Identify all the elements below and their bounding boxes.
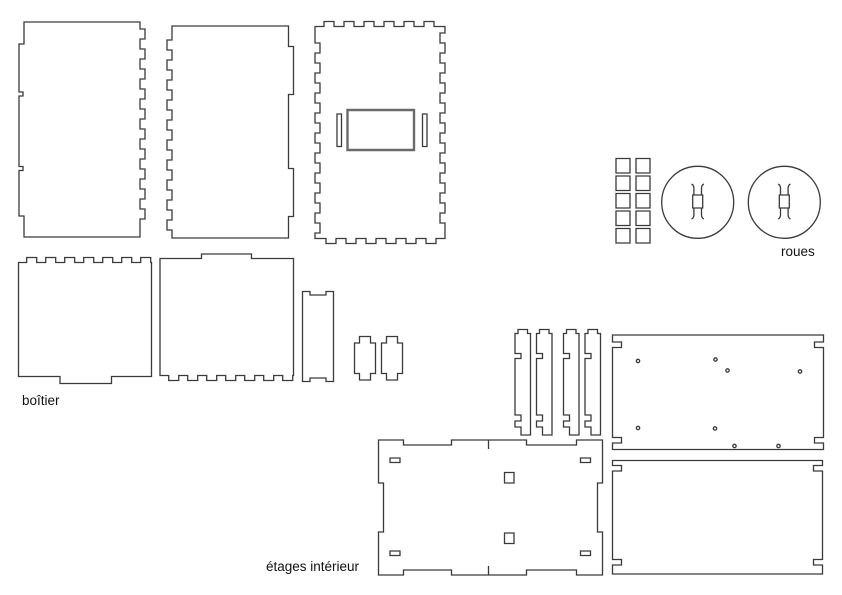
part-back-panel <box>315 22 445 244</box>
group-roues: roues <box>616 159 820 260</box>
part-clip-a <box>355 337 376 381</box>
part-divider-1 <box>515 330 531 436</box>
part-floor-plate-slots <box>390 440 591 575</box>
label-etages-interieur: étages intérieur <box>266 559 360 574</box>
part-box-panel-b <box>160 254 294 381</box>
part-side-panel-b <box>167 26 294 238</box>
label-boitier: boîtier <box>22 393 60 408</box>
lasercut-parts-drawing: boîtier roues étages intérieur <box>0 0 842 595</box>
part-clip-b <box>382 337 403 381</box>
group-etages-interieur: étages intérieur <box>266 330 824 576</box>
part-divider-4 <box>585 330 601 436</box>
lasercut-parts-sheet: boîtier roues étages intérieur <box>0 0 842 595</box>
part-shelf-with-holes <box>613 335 824 450</box>
part-shelf-plain <box>613 461 823 575</box>
part-box-panel-c <box>303 292 334 382</box>
part-wheel-b <box>748 166 820 238</box>
label-roues: roues <box>781 244 815 259</box>
part-divider-3 <box>564 330 580 436</box>
part-spacer-squares <box>616 159 650 244</box>
part-back-panel-window-cutout <box>348 110 415 150</box>
part-shelf-holes <box>636 358 801 448</box>
part-divider-2 <box>537 330 553 436</box>
part-side-panel-a <box>19 22 145 237</box>
part-box-panel-a <box>19 258 152 384</box>
part-floor-plate <box>379 440 603 575</box>
group-boitier: boîtier <box>19 22 446 409</box>
part-wheel-a <box>662 166 734 238</box>
